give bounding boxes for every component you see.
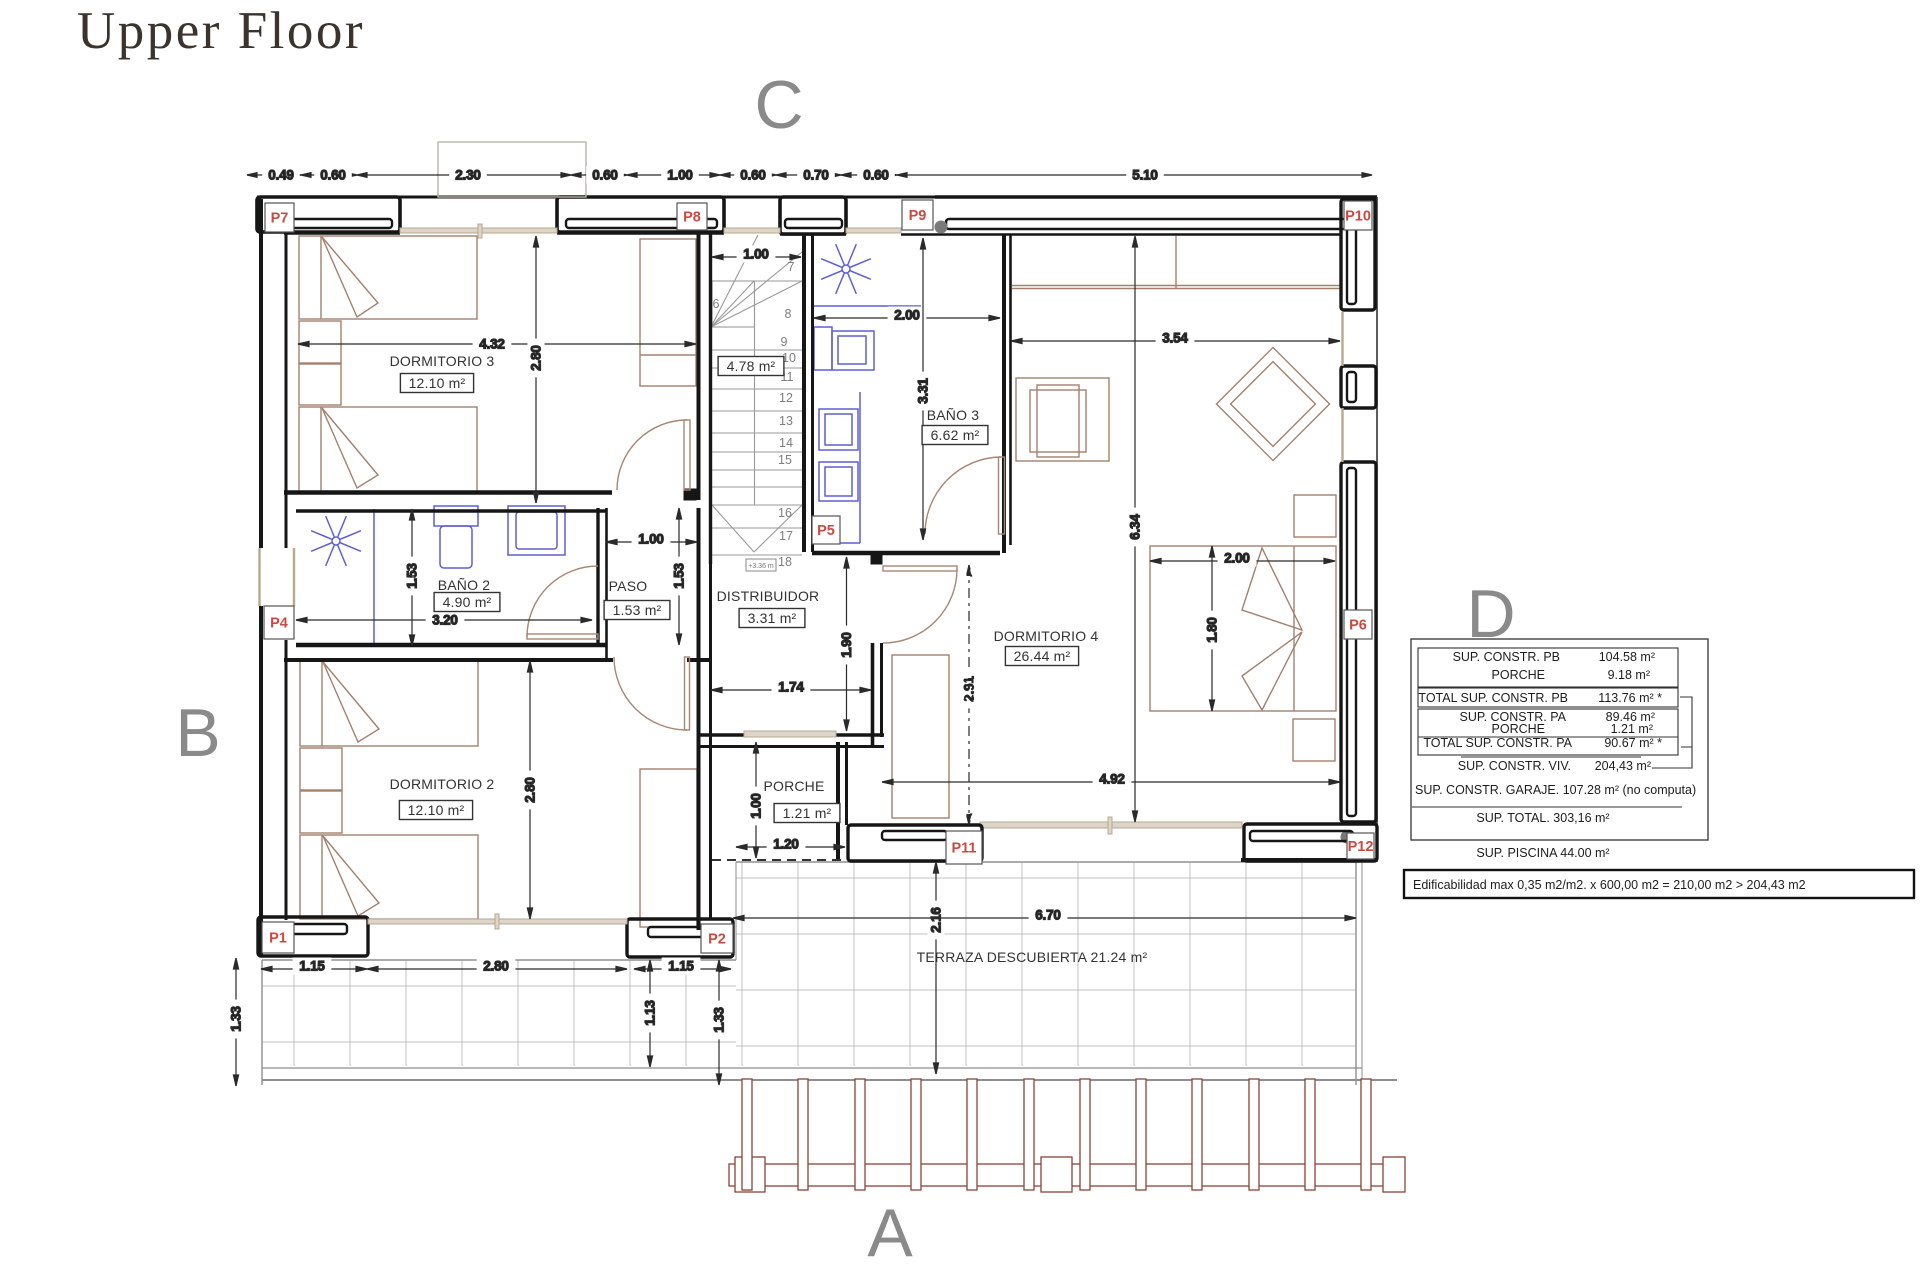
- svg-text:SUP. TOTAL. 303,16 m²: SUP. TOTAL. 303,16 m²: [1476, 811, 1609, 825]
- svg-text:0.60: 0.60: [320, 168, 345, 183]
- svg-text:PORCHE: PORCHE: [1492, 722, 1545, 736]
- svg-text:DISTRIBUIDOR: DISTRIBUIDOR: [717, 588, 820, 604]
- svg-text:C: C: [754, 67, 803, 143]
- svg-text:204,43 m²: 204,43 m²: [1595, 759, 1651, 773]
- svg-text:104.58 m²: 104.58 m²: [1599, 650, 1655, 664]
- svg-text:9.18 m²: 9.18 m²: [1608, 668, 1650, 682]
- svg-text:1.90: 1.90: [839, 632, 854, 657]
- svg-text:B: B: [175, 695, 220, 771]
- svg-text:P10: P10: [1345, 209, 1371, 225]
- svg-text:9: 9: [781, 335, 788, 349]
- svg-text:P8: P8: [683, 210, 701, 226]
- svg-text:2.80: 2.80: [529, 345, 544, 370]
- svg-text:P11: P11: [952, 841, 977, 857]
- svg-text:2.91: 2.91: [962, 676, 977, 702]
- svg-text:1.21 m²: 1.21 m²: [783, 805, 832, 821]
- svg-text:2.16: 2.16: [929, 907, 944, 933]
- svg-text:SUP. CONSTR. GARAJE. 107.28 m²: SUP. CONSTR. GARAJE. 107.28 m² (no compu…: [1415, 783, 1696, 797]
- svg-text:P12: P12: [1348, 839, 1374, 855]
- svg-text:6.70: 6.70: [1035, 908, 1060, 923]
- svg-text:14: 14: [779, 436, 793, 450]
- svg-text:1.00: 1.00: [743, 247, 768, 262]
- svg-text:1.53: 1.53: [405, 563, 420, 589]
- svg-text:PORCHE: PORCHE: [763, 778, 824, 794]
- svg-text:PORCHE: PORCHE: [1492, 668, 1545, 682]
- svg-text:1.00: 1.00: [638, 532, 663, 547]
- svg-text:P7: P7: [271, 211, 289, 227]
- svg-text:0.70: 0.70: [803, 168, 828, 183]
- svg-text:P6: P6: [1349, 618, 1367, 634]
- svg-text:0.60: 0.60: [740, 168, 765, 183]
- svg-text:P5: P5: [817, 523, 835, 539]
- svg-text:13: 13: [779, 414, 793, 428]
- svg-text:15: 15: [778, 453, 792, 467]
- svg-text:TOTAL SUP. CONSTR. PB: TOTAL SUP. CONSTR. PB: [1418, 691, 1568, 705]
- svg-text:1.53: 1.53: [672, 563, 687, 589]
- svg-text:3.20: 3.20: [432, 613, 457, 628]
- svg-text:17: 17: [779, 529, 793, 543]
- svg-text:6.34: 6.34: [1128, 514, 1143, 540]
- svg-text:1.13: 1.13: [643, 1000, 658, 1026]
- svg-text:1.15: 1.15: [668, 959, 694, 974]
- svg-text:18: 18: [778, 555, 792, 569]
- svg-text:3.31: 3.31: [916, 378, 931, 404]
- svg-text:8: 8: [785, 307, 792, 321]
- svg-text:P9: P9: [909, 208, 927, 224]
- svg-text:TERRAZA DESCUBIERTA 21.24 m²: TERRAZA DESCUBIERTA 21.24 m²: [917, 949, 1148, 965]
- svg-text:1.53 m²: 1.53 m²: [613, 602, 662, 618]
- svg-text:1.20: 1.20: [773, 837, 798, 852]
- svg-text:6: 6: [713, 297, 720, 311]
- svg-text:P1: P1: [269, 931, 287, 947]
- svg-text:1.74: 1.74: [778, 680, 804, 695]
- svg-text:+3.36 m: +3.36 m: [748, 563, 774, 570]
- svg-text:26.44 m²: 26.44 m²: [1014, 648, 1071, 664]
- svg-text:Upper Floor: Upper Floor: [77, 2, 365, 60]
- svg-text:A: A: [867, 1195, 913, 1271]
- svg-text:3.54: 3.54: [1162, 331, 1188, 346]
- svg-text:BAÑO 3: BAÑO 3: [927, 407, 980, 423]
- svg-text:4.92: 4.92: [1099, 772, 1124, 787]
- svg-text:1.80: 1.80: [1205, 617, 1220, 642]
- svg-text:DORMITORIO 4: DORMITORIO 4: [994, 628, 1099, 644]
- svg-text:P2: P2: [708, 932, 726, 948]
- svg-text:2.80: 2.80: [483, 959, 508, 974]
- svg-text:16: 16: [778, 506, 792, 520]
- svg-text:2.80: 2.80: [523, 777, 538, 802]
- svg-text:SUP. CONSTR. VIV.: SUP. CONSTR. VIV.: [1458, 759, 1571, 773]
- svg-text:2.30: 2.30: [455, 168, 480, 183]
- svg-text:0.49: 0.49: [268, 168, 293, 183]
- svg-text:6.62 m²: 6.62 m²: [931, 427, 980, 443]
- svg-text:4.32: 4.32: [479, 337, 504, 352]
- svg-text:P4: P4: [270, 616, 288, 632]
- svg-text:TOTAL SUP. CONSTR. PA: TOTAL SUP. CONSTR. PA: [1423, 736, 1572, 750]
- svg-text:7: 7: [788, 260, 795, 274]
- svg-text:DORMITORIO 2: DORMITORIO 2: [390, 776, 495, 792]
- svg-text:1.33: 1.33: [712, 1007, 727, 1033]
- svg-text:113.76 m² *: 113.76 m² *: [1598, 691, 1662, 705]
- svg-text:12.10 m²: 12.10 m²: [408, 802, 465, 818]
- svg-text:4.78 m²: 4.78 m²: [727, 358, 776, 374]
- svg-text:5.10: 5.10: [1132, 168, 1157, 183]
- svg-text:Edificabilidad max 0,35 m2/m2.: Edificabilidad max 0,35 m2/m2. x 600,00 …: [1413, 878, 1806, 892]
- svg-text:1.21 m²: 1.21 m²: [1611, 722, 1653, 736]
- svg-text:SUP. PISCINA 44.00 m²: SUP. PISCINA 44.00 m²: [1476, 846, 1609, 860]
- svg-text:DORMITORIO 3: DORMITORIO 3: [390, 353, 495, 369]
- svg-text:1.00: 1.00: [749, 793, 764, 818]
- svg-text:12.10 m²: 12.10 m²: [409, 375, 466, 391]
- svg-text:0.60: 0.60: [863, 168, 888, 183]
- svg-text:1.15: 1.15: [299, 959, 325, 974]
- svg-text:PASO: PASO: [609, 578, 648, 594]
- svg-text:3.31 m²: 3.31 m²: [748, 610, 797, 626]
- svg-text:BAÑO 2: BAÑO 2: [438, 577, 491, 593]
- svg-text:4.90 m²: 4.90 m²: [443, 594, 492, 610]
- svg-text:90.67 m² *: 90.67 m² *: [1604, 736, 1662, 750]
- svg-text:1.00: 1.00: [667, 168, 692, 183]
- svg-text:1.33: 1.33: [229, 1006, 244, 1032]
- svg-text:2.00: 2.00: [1224, 551, 1249, 566]
- svg-text:12: 12: [779, 391, 793, 405]
- svg-text:0.60: 0.60: [592, 168, 617, 183]
- svg-text:2.00: 2.00: [894, 308, 919, 323]
- svg-text:SUP. CONSTR. PB: SUP. CONSTR. PB: [1453, 650, 1560, 664]
